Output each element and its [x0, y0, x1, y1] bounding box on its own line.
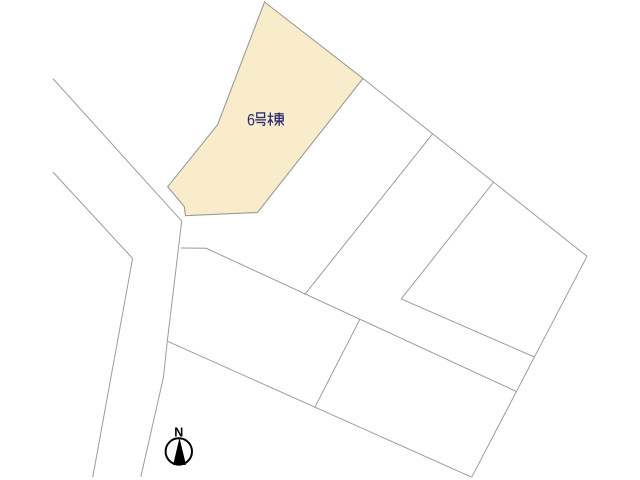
svg-text:N: N [174, 426, 183, 440]
svg-text:6: 6 [247, 111, 255, 130]
